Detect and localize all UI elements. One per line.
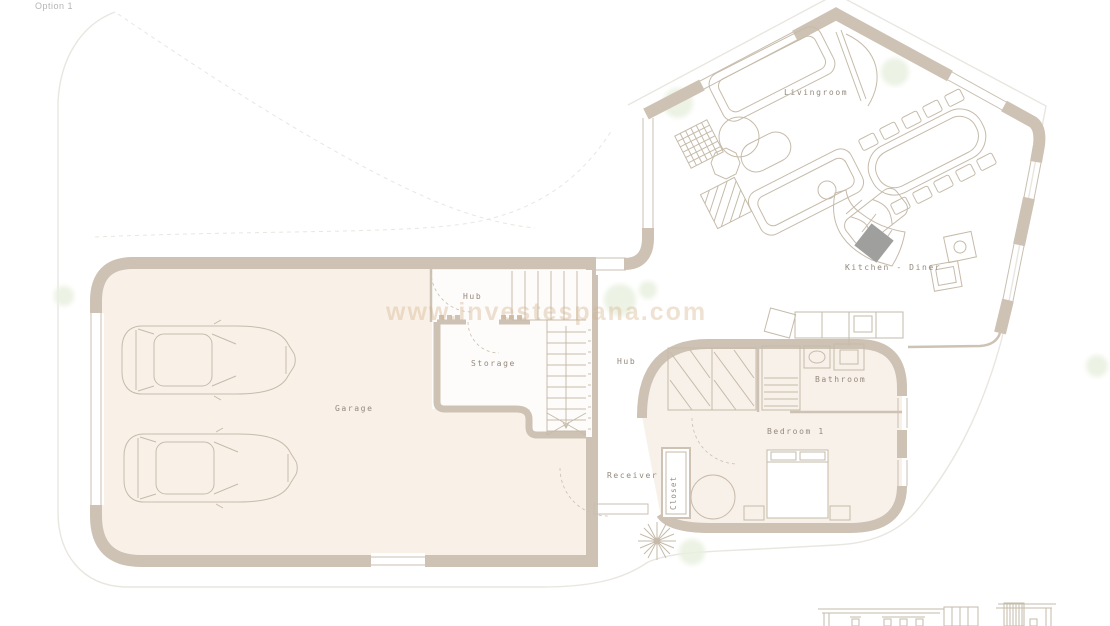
livingroom-label: Livingroom [784, 88, 848, 98]
hub-upper-label: Hub [463, 292, 482, 302]
garage-window [88, 313, 104, 505]
option-title: Option 1 [35, 1, 73, 11]
elevation-drawing [818, 603, 1056, 626]
kitchen-diner-label: Kitchen - Diner [845, 263, 941, 273]
garage-label: Garage [335, 404, 374, 414]
watermark-text: www.investespana.com [386, 298, 707, 327]
dining-table-icon [858, 89, 997, 215]
rug-icon [675, 120, 723, 168]
coffee-table-icon [818, 181, 836, 199]
livingroom-furniture [675, 23, 911, 250]
floor-plan-page: Option 1 www.investespana.com Livingroom… [0, 0, 1110, 626]
garage-door [371, 553, 425, 569]
star-plant-icon [638, 522, 676, 560]
armchair-icon [719, 117, 759, 157]
storage-label: Storage [471, 359, 516, 369]
elevation-screen-icon [1004, 603, 1024, 626]
closet-label: Closet [669, 458, 679, 510]
dining-chairs [858, 89, 997, 215]
hub-lower-label: Hub [617, 357, 636, 367]
side-table-icon [711, 148, 740, 179]
sofa-icon [705, 23, 839, 126]
sofa-icon [744, 145, 867, 240]
bathroom-label: Bathroom [815, 375, 866, 385]
receiver-label: Receiver [607, 471, 658, 481]
bedroom1-label: Bedroom 1 [767, 427, 825, 437]
hub-storage-stairs [431, 269, 592, 437]
rug-icon [700, 177, 751, 228]
sink-icon [854, 316, 872, 332]
chaise-icon [736, 127, 796, 177]
